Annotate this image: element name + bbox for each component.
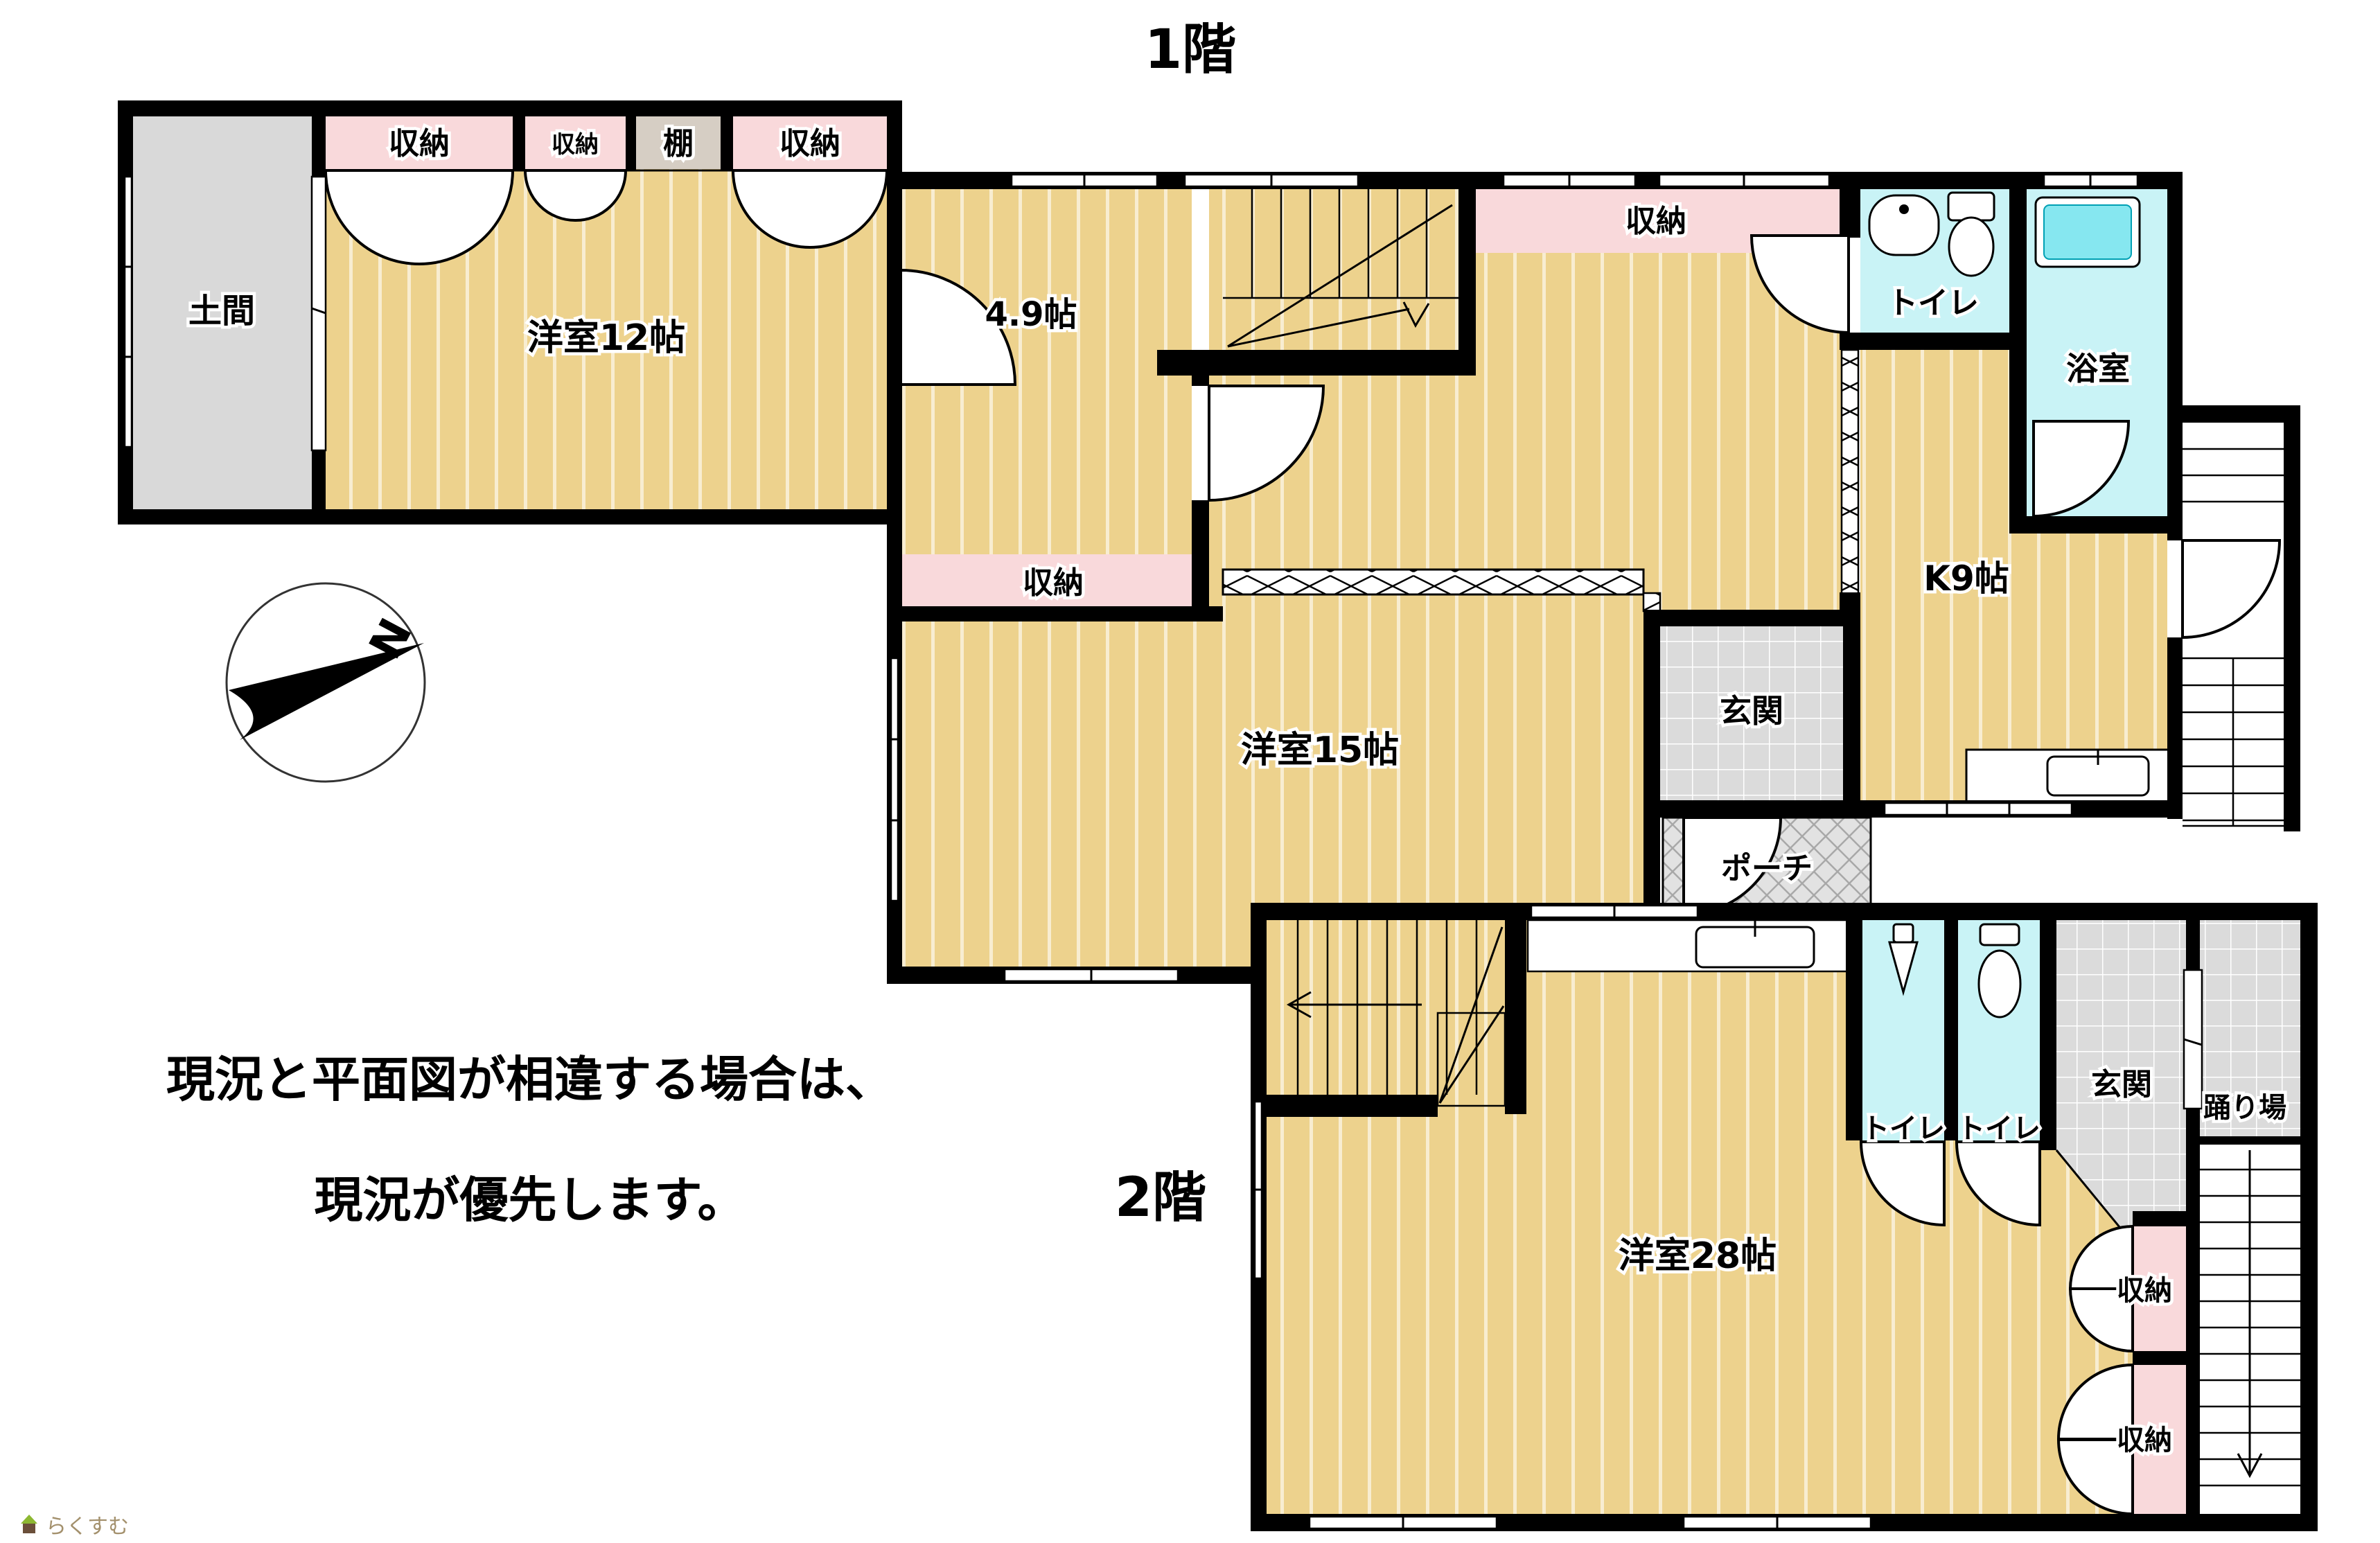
room-label-genkan-2f: 玄関 [2091, 1067, 2152, 1102]
room-label-closet-c: 収納 [779, 126, 840, 161]
transom-strip-v [1842, 350, 1858, 594]
watermark-brand: らくすむ [46, 1515, 129, 1539]
compass: N [227, 583, 425, 782]
room-label-49: 4.9帖 [985, 295, 1077, 334]
room-label-closet-b: 収納 [552, 131, 599, 159]
room-label-closet2f-lower: 収納 [2117, 1425, 2172, 1456]
room-label-doma: 土間 [188, 292, 255, 330]
room-label-porch: ポーチ [1721, 851, 1813, 886]
watermark: らくすむ [21, 1515, 129, 1539]
room-label-yoshitsu12: 洋室12帖 [527, 317, 685, 359]
transom-strip-v-small [1643, 593, 1660, 611]
floor1-plan: 土間 収納 収納 棚 収納 洋室12帖 4.9帖 収納 収納 トイレ 浴室 K9… [118, 100, 2300, 984]
floor1-title: 1階 [1145, 19, 1236, 81]
transom-strip-h [1223, 570, 1643, 594]
room-label-shelf: 棚 [663, 126, 694, 161]
floorplan-svg: 土間 収納 収納 棚 収納 洋室12帖 4.9帖 収納 収納 トイレ 浴室 K9… [0, 0, 2380, 1543]
watermark-house-icon [21, 1515, 37, 1524]
notice-line2: 現況が優先します。 [315, 1172, 746, 1228]
room-label-yoshitsu15: 洋室15帖 [1241, 730, 1399, 771]
room-label-yoshitsu28: 洋室28帖 [1619, 1235, 1777, 1277]
floor2-title: 2階 [1115, 1167, 1206, 1229]
bathtub [2036, 197, 2140, 267]
room-label-closet-d: 収納 [1023, 565, 1084, 601]
floor2-plan: トイレ トイレ 玄関 踊り場 洋室28帖 収納 収納 [1251, 903, 2318, 1531]
floorplan-page: 土間 収納 収納 棚 収納 洋室12帖 4.9帖 収納 収納 トイレ 浴室 K9… [0, 0, 2380, 1543]
room-label-closet-a: 収納 [389, 126, 450, 161]
notice-line1: 現況と平面図が相違する場合は、 [166, 1051, 894, 1108]
room-label-bath: 浴室 [2066, 350, 2130, 387]
kitchen-counter-1f [1966, 750, 2180, 802]
room-label-genkan-1f: 玄関 [1720, 692, 1783, 730]
room-label-hall-closet: 収納 [1625, 204, 1686, 239]
room-label-toilet-1f: トイレ [1887, 285, 1979, 321]
room-label-odoriba: 踊り場 [2203, 1092, 2286, 1124]
room-label-closet2f-upper: 収納 [2117, 1275, 2172, 1307]
room-label-toilet2f-left: トイレ [1862, 1113, 1945, 1145]
room-label-toilet2f-right: トイレ [1957, 1113, 2040, 1145]
room-label-k9: K9帖 [1923, 558, 2009, 599]
